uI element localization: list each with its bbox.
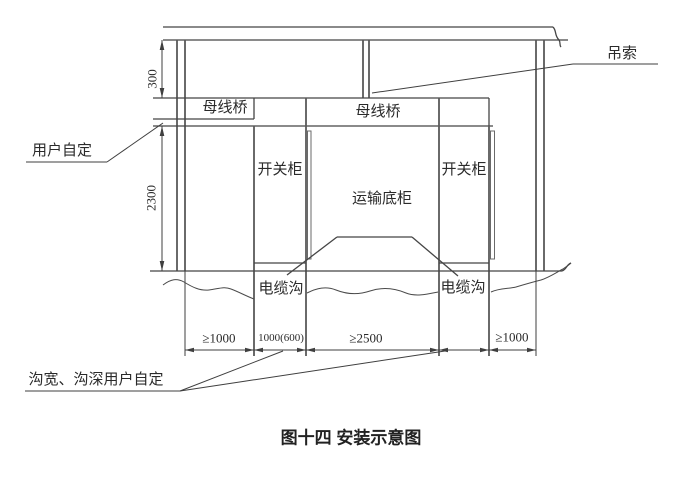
diagram-line: [297, 348, 306, 352]
diagram-line: [160, 40, 165, 50]
dim-300-value: 300: [145, 69, 160, 89]
diagram-line: [254, 348, 263, 352]
installation-diagram: 吊索 母线桥 母线桥 开关柜 开关柜 运输底柜 电缆沟 电缆沟 用户自定 沟宽、…: [0, 0, 683, 485]
dim-front-clearance-value: ≥2500: [349, 331, 382, 346]
right-column: [536, 40, 544, 271]
diagram-line: [480, 348, 489, 352]
dim-left-clearance-value: ≥1000: [202, 331, 235, 346]
left-inset-rail: [308, 131, 312, 259]
left-column: [177, 40, 185, 271]
busbar-bridge-center-label: 母线桥: [355, 103, 400, 120]
diagram-line: [160, 261, 165, 271]
dim-2300-value: 2300: [144, 185, 159, 211]
dimension-2300: [160, 126, 165, 271]
dim-trench-width-value: 1000(600): [258, 332, 304, 344]
cabinet-row: [254, 98, 495, 356]
cable-trench-right-label: 电缆沟: [440, 279, 485, 296]
diagram-line: [430, 348, 439, 352]
sling-label: 吊索: [607, 45, 637, 62]
switch-cabinet-left-label: 开关柜: [257, 161, 302, 178]
dimension-300: [160, 40, 165, 98]
middle-column: [363, 40, 369, 98]
busbar-bridge-left-label: 母线桥: [202, 99, 247, 116]
diagram-line: [372, 64, 573, 93]
diagram-line: [412, 237, 458, 276]
sling-leader: [372, 64, 658, 93]
diagram-line: [163, 280, 254, 299]
ground-surface-lines: [163, 263, 571, 299]
user-defined-label: 用户自定: [32, 142, 92, 159]
dim-right-clearance-value: ≥1000: [495, 330, 528, 345]
diagram-line: [185, 348, 194, 352]
diagram-line: [527, 348, 536, 352]
diagram-line: [160, 126, 165, 136]
diagram-line: [287, 237, 337, 275]
ceiling-beam: [163, 27, 568, 47]
diagram-line: [107, 123, 163, 162]
diagram-line: [160, 88, 165, 98]
switch-cabinet-right-label: 开关柜: [441, 161, 486, 178]
diagram-line: [307, 288, 438, 295]
trench-note-label: 沟宽、沟深用户自定: [28, 371, 163, 388]
diagram-line: [489, 348, 498, 352]
transport-skid: [287, 237, 458, 276]
floor-line: [150, 263, 571, 271]
ceiling-break-mark: [553, 27, 561, 47]
diagram-line: [491, 263, 571, 292]
cable-trench-left-label: 电缆沟: [258, 280, 303, 297]
transport-base-cabinet-label: 运输底柜: [352, 190, 412, 207]
diagram-line: [180, 351, 283, 391]
diagram-canvas: 吊索 母线桥 母线桥 开关柜 开关柜 运输底柜 电缆沟 电缆沟 用户自定 沟宽、…: [0, 0, 683, 485]
right-inset-rail: [491, 131, 495, 259]
diagram-line: [306, 348, 315, 352]
diagram-line: [245, 348, 254, 352]
diagram-line: [180, 351, 445, 391]
figure-title: 图十四 安装示意图: [281, 428, 422, 448]
